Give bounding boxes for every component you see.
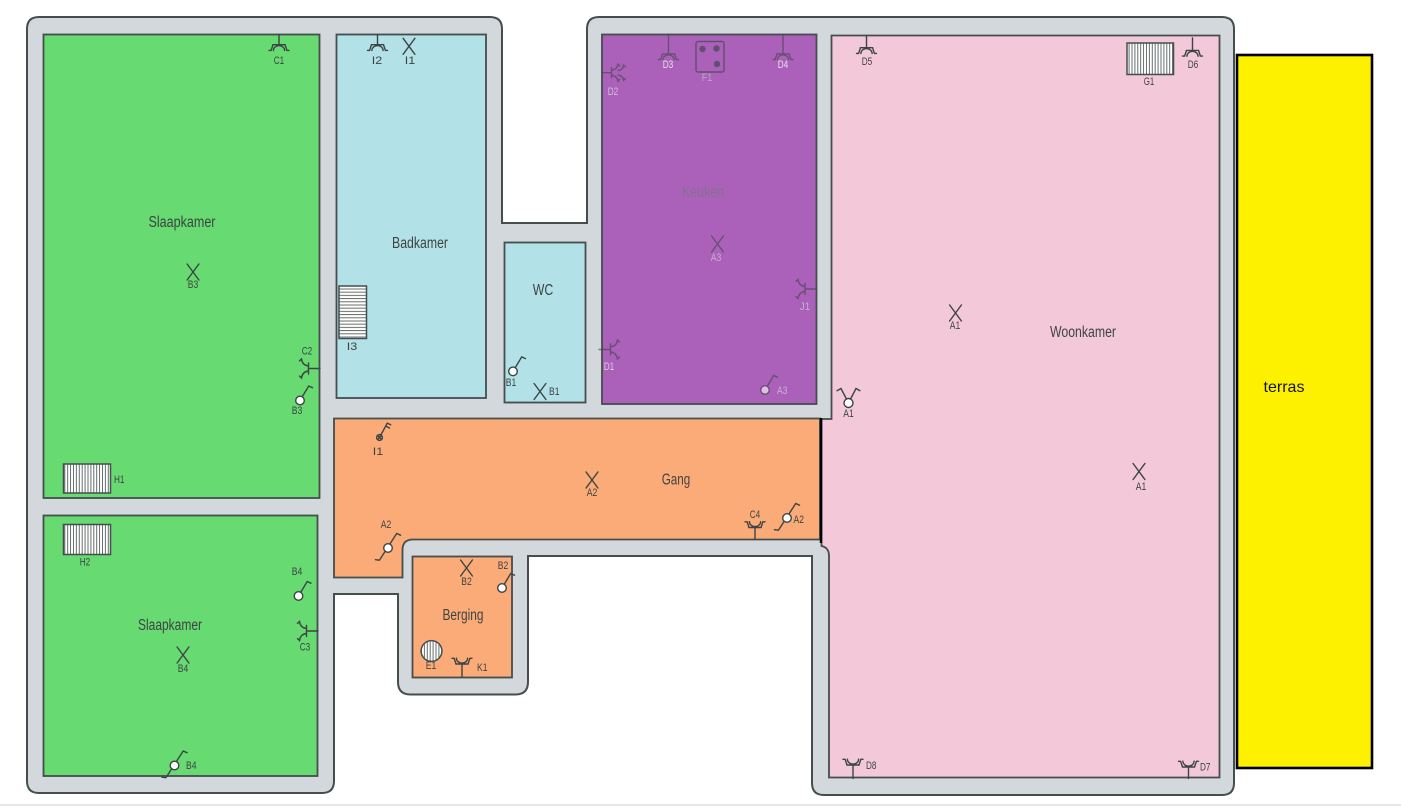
svg-text:B4: B4 bbox=[178, 663, 189, 675]
svg-text:B1: B1 bbox=[549, 386, 560, 398]
svg-text:A2: A2 bbox=[381, 519, 392, 531]
svg-text:Slaapkamer: Slaapkamer bbox=[149, 214, 216, 231]
svg-text:B4: B4 bbox=[186, 760, 197, 772]
svg-text:A2: A2 bbox=[794, 514, 805, 526]
svg-text:D1: D1 bbox=[604, 361, 615, 373]
svg-text:Keuken: Keuken bbox=[682, 184, 724, 201]
svg-text:D8: D8 bbox=[866, 760, 877, 772]
svg-text:Woonkamer: Woonkamer bbox=[1050, 324, 1116, 341]
svg-text:B3: B3 bbox=[188, 279, 199, 291]
svg-text:E1: E1 bbox=[426, 660, 437, 672]
svg-text:C4: C4 bbox=[750, 509, 761, 521]
svg-text:A3: A3 bbox=[711, 252, 722, 264]
svg-text:I1: I1 bbox=[405, 55, 416, 67]
svg-text:terras: terras bbox=[1264, 379, 1305, 396]
svg-text:D3: D3 bbox=[663, 59, 674, 71]
svg-text:D7: D7 bbox=[1200, 762, 1211, 774]
svg-text:G1: G1 bbox=[1144, 76, 1155, 88]
svg-text:A2: A2 bbox=[587, 487, 598, 499]
svg-text:WC: WC bbox=[533, 282, 554, 299]
svg-text:C2: C2 bbox=[302, 346, 313, 358]
svg-text:A1: A1 bbox=[950, 320, 961, 332]
svg-text:K1: K1 bbox=[477, 662, 488, 674]
svg-text:J1: J1 bbox=[800, 301, 811, 313]
svg-text:D4: D4 bbox=[778, 59, 789, 71]
svg-text:D5: D5 bbox=[862, 56, 873, 68]
svg-text:B2: B2 bbox=[461, 576, 472, 588]
svg-text:B1: B1 bbox=[506, 377, 517, 389]
svg-text:B2: B2 bbox=[498, 560, 509, 572]
svg-text:B3: B3 bbox=[292, 405, 303, 417]
svg-text:A1: A1 bbox=[1136, 481, 1147, 493]
svg-text:A3: A3 bbox=[777, 385, 788, 397]
svg-text:I1: I1 bbox=[373, 446, 384, 458]
svg-text:Badkamer: Badkamer bbox=[392, 235, 448, 252]
svg-text:F1: F1 bbox=[702, 72, 713, 84]
svg-text:H1: H1 bbox=[114, 474, 125, 486]
svg-text:B4: B4 bbox=[292, 566, 303, 578]
svg-text:I3: I3 bbox=[347, 341, 358, 353]
svg-text:H2: H2 bbox=[80, 557, 91, 569]
svg-text:A1: A1 bbox=[843, 408, 854, 420]
svg-text:Berging: Berging bbox=[443, 607, 484, 624]
svg-text:C3: C3 bbox=[300, 642, 311, 654]
svg-text:I2: I2 bbox=[372, 55, 383, 67]
svg-text:Gang: Gang bbox=[662, 472, 691, 489]
svg-text:D6: D6 bbox=[1188, 59, 1199, 71]
svg-text:Slaapkamer: Slaapkamer bbox=[138, 617, 202, 634]
svg-text:C1: C1 bbox=[274, 55, 285, 67]
svg-text:D2: D2 bbox=[608, 86, 619, 98]
